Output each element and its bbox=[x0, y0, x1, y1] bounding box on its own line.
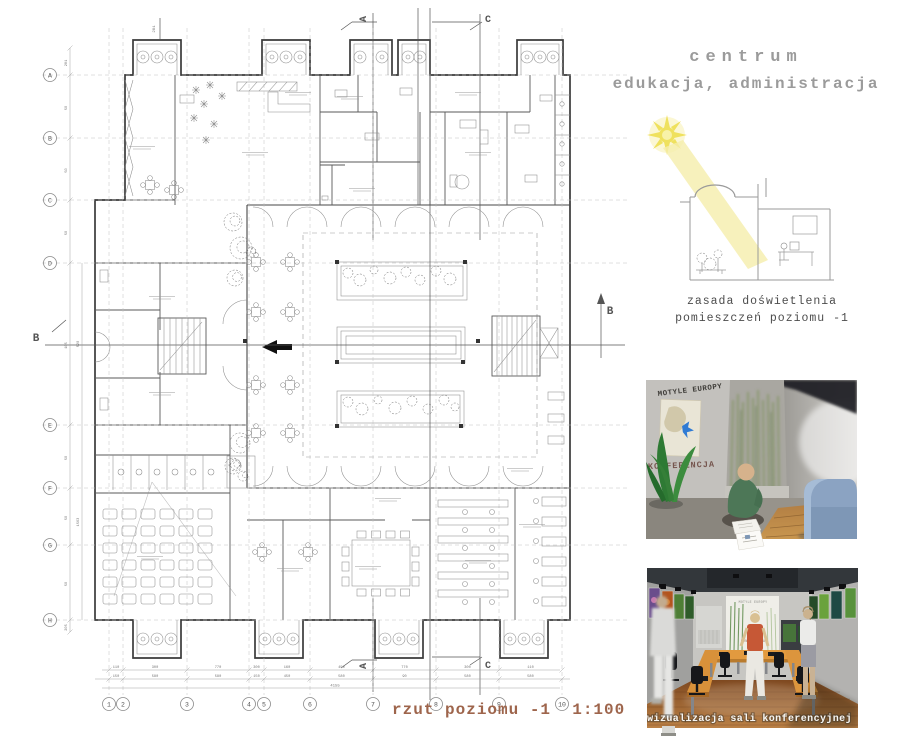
board-title: centrum edukacja, administracja bbox=[598, 48, 894, 93]
sketch-caption-line-1: zasada doświetlenia bbox=[644, 293, 880, 310]
svg-text:50: 50 bbox=[65, 516, 69, 520]
building-outline bbox=[95, 40, 570, 658]
svg-text:50: 50 bbox=[65, 456, 69, 460]
svg-text:H: H bbox=[48, 617, 52, 624]
svg-text:580: 580 bbox=[527, 675, 533, 679]
svg-text:205: 205 bbox=[65, 624, 69, 630]
svg-text:A: A bbox=[359, 663, 370, 669]
svg-text:150: 150 bbox=[253, 675, 259, 679]
banner-title: MOTYLE EUROPY bbox=[739, 600, 768, 604]
svg-text:E: E bbox=[48, 422, 52, 429]
presentation-board: ABCDEFGH12345678910ACACBB110150300580770… bbox=[0, 0, 900, 747]
svg-text:300: 300 bbox=[253, 666, 259, 670]
svg-text:110: 110 bbox=[527, 666, 533, 670]
svg-text:580: 580 bbox=[338, 675, 344, 679]
atrium-walls bbox=[247, 205, 570, 488]
svg-text:C: C bbox=[485, 661, 491, 672]
atrium-planters bbox=[227, 262, 467, 488]
svg-text:G: G bbox=[48, 542, 52, 549]
svg-text:50: 50 bbox=[65, 582, 69, 586]
light-beam bbox=[663, 140, 768, 269]
svg-text:580: 580 bbox=[152, 675, 158, 679]
viz2-caption: wizualizacja sali konferencyjnej bbox=[647, 713, 852, 725]
svg-text:3: 3 bbox=[185, 701, 189, 708]
svg-text:1563: 1563 bbox=[77, 518, 81, 527]
svg-text:C: C bbox=[485, 15, 491, 26]
visualization-conference-room: MOTYLE EUROPY KONFERENCJA bbox=[647, 568, 858, 740]
shoe-overhang bbox=[661, 726, 676, 736]
svg-text:580: 580 bbox=[464, 675, 470, 679]
section-arrowhead bbox=[597, 293, 605, 304]
svg-text:450: 450 bbox=[338, 666, 344, 670]
svg-text:4: 4 bbox=[247, 701, 251, 708]
entrance-arrow bbox=[262, 340, 292, 354]
svg-text:580: 580 bbox=[215, 675, 221, 679]
visualization-reading-corner: MOTYLE EUROPY KONFERENCJA bbox=[646, 380, 857, 556]
svg-text:50: 50 bbox=[65, 168, 69, 172]
conference-table bbox=[352, 540, 410, 586]
svg-text:520: 520 bbox=[77, 341, 81, 347]
person-left bbox=[650, 594, 676, 718]
svg-text:C: C bbox=[48, 197, 52, 204]
svg-text:300: 300 bbox=[464, 666, 470, 670]
svg-text:B: B bbox=[33, 333, 40, 345]
svg-text:160: 160 bbox=[284, 666, 290, 670]
svg-text:50: 50 bbox=[65, 231, 69, 235]
svg-text:300: 300 bbox=[152, 666, 158, 670]
projection-cone bbox=[114, 482, 236, 596]
elevator-shaft bbox=[540, 328, 558, 358]
svg-text:1: 1 bbox=[107, 701, 111, 708]
svg-text:110: 110 bbox=[113, 666, 119, 670]
svg-text:770: 770 bbox=[401, 666, 407, 670]
svg-text:2: 2 bbox=[121, 701, 125, 708]
blue-armchair bbox=[798, 479, 857, 542]
svg-text:5: 5 bbox=[262, 701, 266, 708]
sketch-caption-line-2: pomieszczeń poziomu -1 bbox=[644, 310, 880, 327]
plan-caption: rzut poziomu -1 1:100 bbox=[392, 701, 625, 719]
floor-plan: ABCDEFGH12345678910ACACBB110150300580770… bbox=[0, 0, 640, 712]
svg-text:770: 770 bbox=[215, 666, 221, 670]
svg-text:F: F bbox=[48, 485, 52, 492]
svg-text:7: 7 bbox=[371, 701, 375, 708]
svg-text:450: 450 bbox=[284, 675, 290, 679]
svg-text:A: A bbox=[48, 72, 52, 79]
svg-text:281: 281 bbox=[65, 60, 69, 66]
svg-text:150: 150 bbox=[113, 675, 119, 679]
svg-text:281: 281 bbox=[153, 25, 157, 33]
title-line-1: centrum bbox=[598, 48, 894, 67]
svg-text:105: 105 bbox=[65, 342, 69, 348]
svg-text:6: 6 bbox=[308, 701, 312, 708]
svg-text:B: B bbox=[607, 306, 614, 318]
svg-text:B: B bbox=[48, 135, 52, 142]
svg-text:4155: 4155 bbox=[330, 685, 340, 689]
svg-text:50: 50 bbox=[65, 106, 69, 110]
svg-text:A: A bbox=[359, 16, 370, 22]
sketch-caption: zasada doświetlenia pomieszczeń poziomu … bbox=[644, 293, 880, 327]
title-line-2: edukacja, administracja bbox=[598, 75, 894, 93]
svg-text:90: 90 bbox=[402, 675, 406, 679]
daylight-section-sketch bbox=[638, 140, 894, 298]
svg-text:D: D bbox=[48, 260, 52, 267]
